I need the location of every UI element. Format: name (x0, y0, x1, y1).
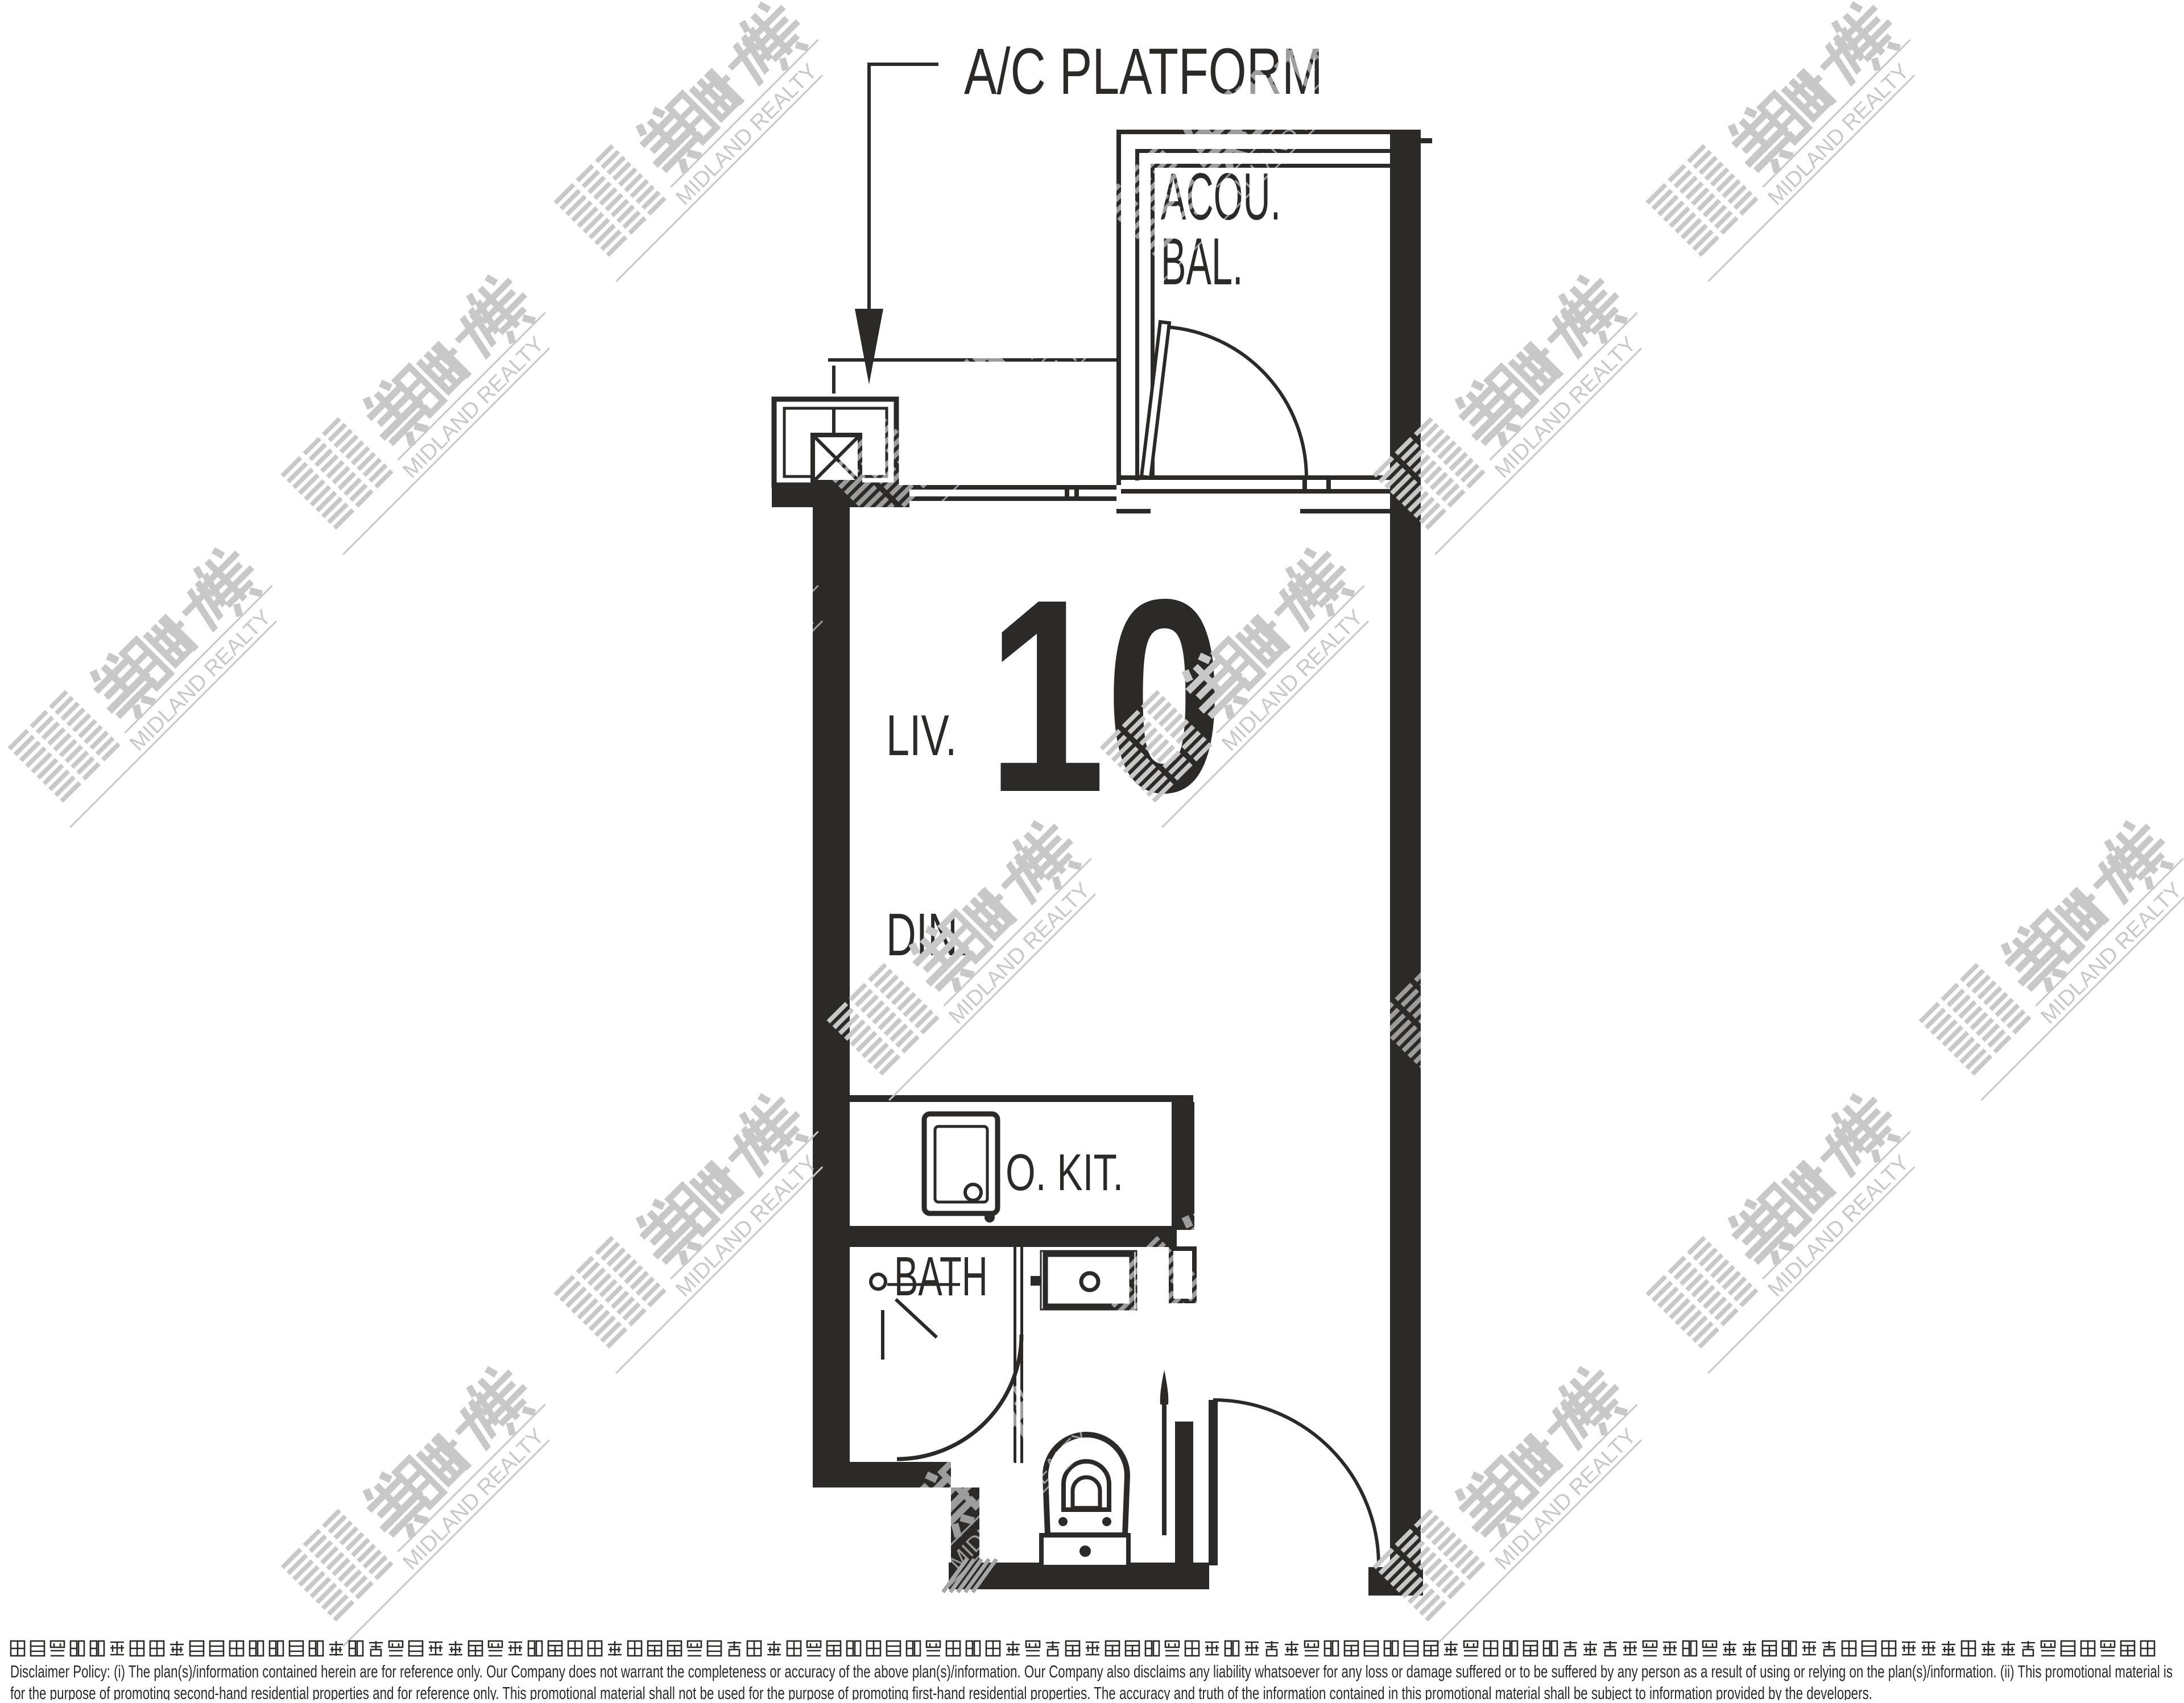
svg-text:LIV.: LIV. (886, 703, 957, 768)
svg-text:Disclaimer Policy: (i) The pla: Disclaimer Policy: (i) The plan(s)/infor… (10, 1661, 2173, 1681)
svg-text:10: 10 (987, 542, 1223, 850)
svg-text:O. KIT.: O. KIT. (1006, 1143, 1123, 1201)
svg-text:BAL.: BAL. (1161, 225, 1243, 299)
svg-text:BATH: BATH (894, 1246, 988, 1308)
svg-text:for the purpose of promoting s: for the purpose of promoting second-hand… (10, 1683, 1872, 1700)
